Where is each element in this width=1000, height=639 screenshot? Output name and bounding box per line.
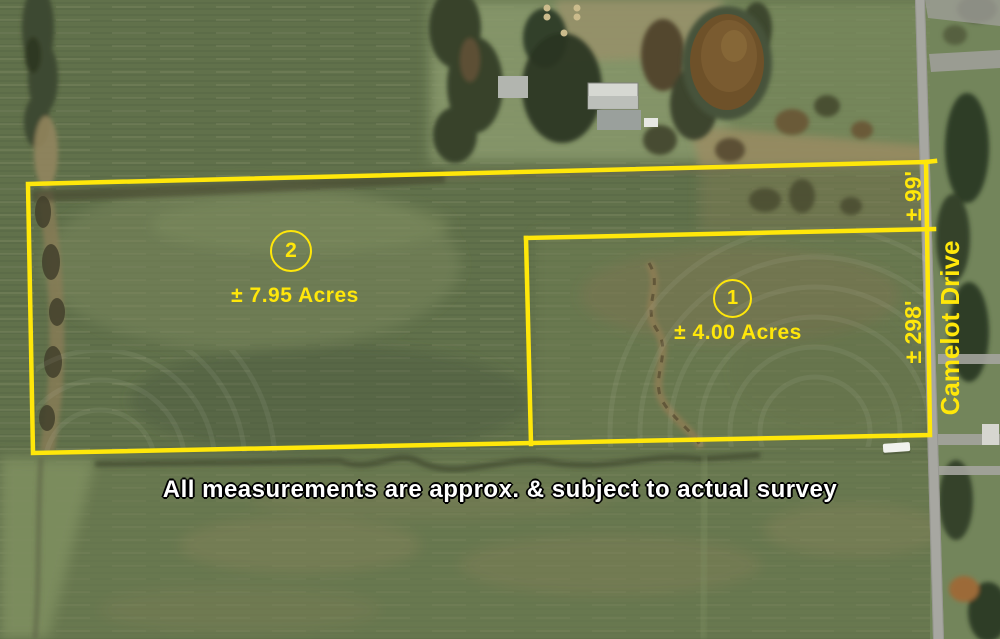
aerial-parcel-map: 2 ± 7.95 Acres 1 ± 4.00 Acres ± 99' ± 29… bbox=[0, 0, 1000, 639]
road-name-label: Camelot Drive bbox=[936, 220, 964, 436]
parcel-2-number-badge: 2 bbox=[270, 230, 312, 272]
parcel-1-acreage-label: ± 4.00 Acres bbox=[648, 320, 828, 345]
parcel-2-road-frontage-measurement: ± 99' bbox=[901, 141, 925, 251]
parcel-1-road-frontage-measurement: ± 298' bbox=[901, 265, 925, 399]
corner-tick bbox=[926, 161, 935, 162]
pond bbox=[682, 6, 772, 120]
survey-disclaimer-text: All measurements are approx. & subject t… bbox=[0, 476, 1000, 504]
parcel-1-number-badge: 1 bbox=[713, 279, 752, 318]
parcel-2-acreage-label: ± 7.95 Acres bbox=[205, 283, 385, 308]
trailer bbox=[883, 442, 911, 455]
aerial-photo bbox=[0, 0, 1000, 639]
